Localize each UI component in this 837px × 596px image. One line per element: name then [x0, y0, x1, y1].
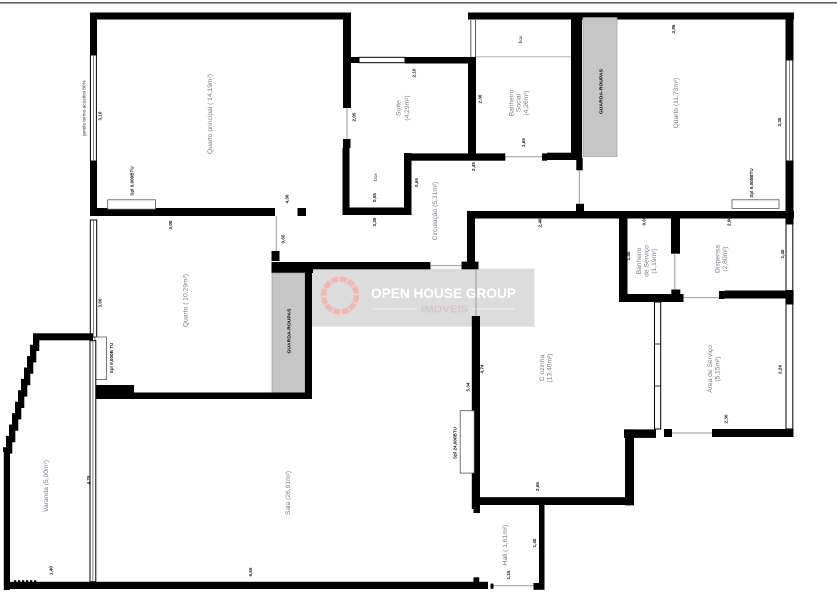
svg-text:Quarto (11,73m²): Quarto (11,73m²) [673, 78, 680, 129]
svg-text:Banheiro: Banheiro [636, 247, 643, 274]
svg-text:Hall ( 1,61m²): Hall ( 1,61m²) [502, 525, 509, 566]
svg-text:GUARDA-ROUPAS: GUARDA-ROUPAS [599, 68, 605, 114]
svg-text:3,60: 3,60 [98, 298, 103, 307]
svg-text:2,30: 2,30 [478, 94, 483, 103]
svg-text:3,30: 3,30 [372, 217, 377, 226]
svg-text:(5,15m²): (5,15m²) [715, 356, 722, 381]
svg-text:(4,26m²): (4,26m²) [523, 90, 530, 115]
svg-text:Circulação (5,31m²): Circulação (5,31m²) [432, 182, 439, 241]
svg-text:IMOVEIS: IMOVEIS [421, 305, 468, 316]
svg-text:2,24: 2,24 [778, 365, 783, 374]
svg-text:2,40: 2,40 [538, 218, 543, 227]
svg-text:Spl 24,000BTU: Spl 24,000BTU [453, 426, 458, 459]
svg-text:3,00: 3,00 [168, 220, 173, 229]
svg-text:(2,80m²): (2,80m²) [722, 246, 729, 271]
svg-text:(4,29m²): (4,29m²) [404, 95, 411, 120]
svg-text:6,55: 6,55 [248, 567, 253, 576]
svg-text:2,10: 2,10 [412, 68, 417, 77]
svg-text:1,40: 1,40 [780, 249, 785, 258]
svg-text:4,25: 4,25 [86, 475, 91, 484]
svg-text:Área de Serviço: Área de Serviço [705, 345, 714, 393]
svg-text:4,30: 4,30 [285, 194, 290, 203]
svg-text:4,74: 4,74 [480, 364, 485, 373]
svg-text:Dispensa: Dispensa [715, 245, 722, 273]
svg-text:OPEN HOUSE GROUP: OPEN HOUSE GROUP [371, 285, 516, 301]
svg-text:Varanda (5,00m²): Varanda (5,00m²) [43, 460, 50, 512]
svg-text:1,15: 1,15 [506, 570, 511, 579]
svg-text:box: box [373, 173, 378, 181]
svg-text:(1,19m²): (1,19m²) [651, 248, 658, 273]
svg-text:Quarto principal ( 14,19m²): Quarto principal ( 14,19m²) [207, 74, 214, 154]
svg-text:Quarto ( 10,29m²): Quarto ( 10,29m²) [183, 274, 190, 327]
svg-text:Spl 9,000BTU: Spl 9,000BTU [749, 168, 754, 198]
svg-text:Sala (26,91m²): Sala (26,91m²) [285, 471, 292, 515]
svg-text:0,95: 0,95 [372, 193, 377, 202]
svg-text:box: box [518, 35, 523, 43]
svg-text:1,40: 1,40 [49, 566, 54, 575]
svg-text:3,30: 3,30 [777, 117, 782, 126]
svg-text:GUARDA-ROUPAS: GUARDA-ROUPAS [287, 308, 293, 354]
svg-text:de Serviço: de Serviço [644, 245, 651, 277]
svg-text:2,00: 2,00 [727, 217, 732, 226]
svg-text:Spl 9,000BTU: Spl 9,000BTU [130, 166, 135, 196]
svg-text:2,05: 2,05 [352, 112, 357, 121]
svg-text:5,34: 5,34 [466, 382, 471, 391]
svg-text:0,65: 0,65 [642, 216, 647, 225]
svg-text:1,40: 1,40 [626, 251, 631, 260]
svg-text:2,30: 2,30 [724, 414, 729, 423]
svg-text:0,65: 0,65 [281, 234, 286, 243]
svg-text:Social: Social [516, 93, 523, 112]
svg-text:0,65: 0,65 [414, 178, 419, 187]
svg-text:2,45: 2,45 [471, 162, 476, 171]
svg-text:3,85: 3,85 [671, 24, 676, 33]
svg-text:Banheiro: Banheiro [509, 89, 516, 116]
svg-text:2,65: 2,65 [535, 482, 540, 491]
svg-text:Spl 9,000B TU: Spl 9,000B TU [109, 342, 114, 373]
svg-text:1,65: 1,65 [521, 138, 526, 147]
svg-text:(13,40m²): (13,40m²) [546, 354, 553, 383]
svg-text:Suíte: Suíte [396, 100, 403, 116]
svg-text:1,40: 1,40 [532, 538, 537, 547]
svg-text:janela termo-acústica 80%: janela termo-acústica 80% [82, 80, 87, 136]
svg-text:C ozinha: C ozinha [539, 355, 546, 382]
svg-text:3,10: 3,10 [98, 111, 103, 120]
